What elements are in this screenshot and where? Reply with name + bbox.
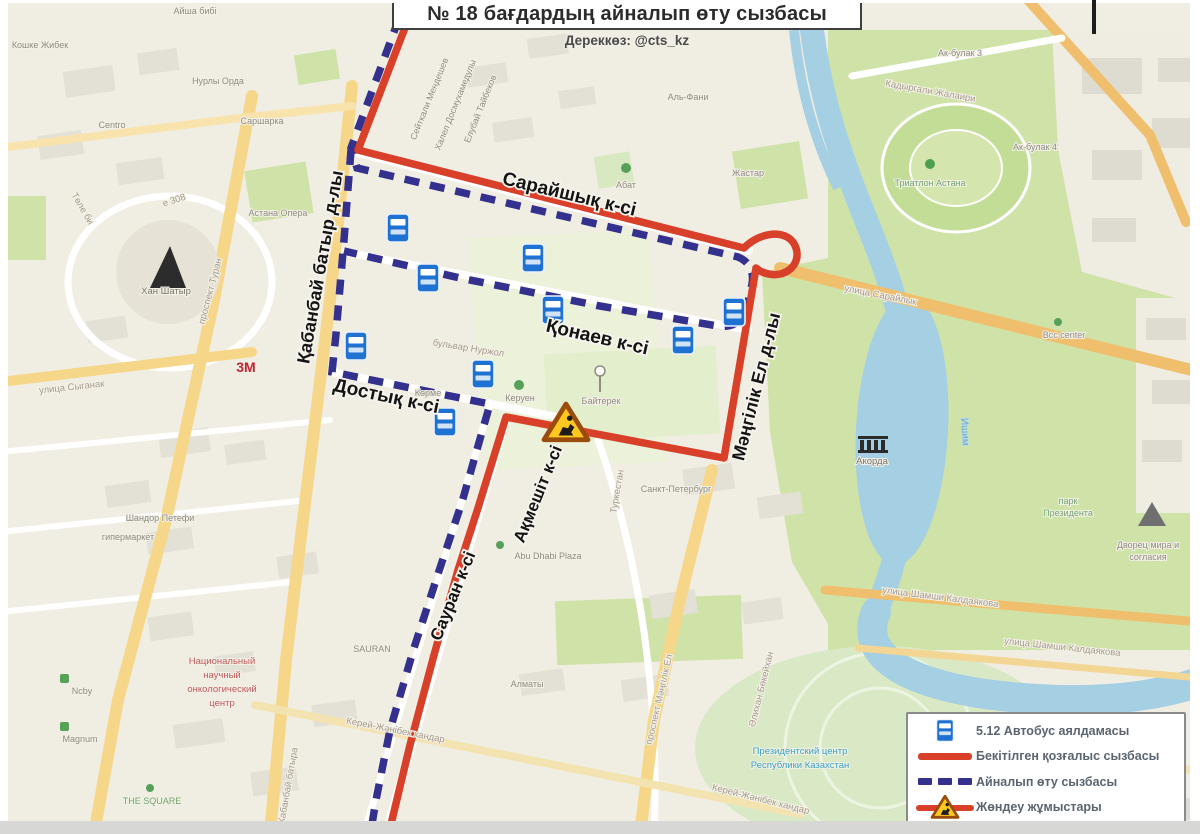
- map-label: Ncby: [72, 686, 93, 696]
- map-label: Шандор Петефи: [126, 513, 195, 523]
- map-label: 3М: [236, 359, 255, 375]
- map-label: Дворец мира и: [1117, 540, 1179, 550]
- map-label: Президента: [1043, 508, 1093, 518]
- map-label: Нурлы Орда: [192, 76, 244, 86]
- map-label: THE SQUARE: [123, 796, 182, 806]
- map-label: парк: [1059, 496, 1078, 506]
- legend-label: Бекітілген қозғалыс сызбасы: [976, 749, 1159, 763]
- magnum-icon: [60, 722, 69, 731]
- map-label: Санкт-Петербург: [641, 484, 712, 494]
- map-label: научный: [203, 670, 241, 681]
- legend-label: Айналып өту сызбасы: [976, 775, 1117, 789]
- legend-label: Жөндеу жұмыстары: [976, 800, 1102, 814]
- stadium: [882, 104, 1030, 232]
- approved-route-swatch: [918, 753, 972, 760]
- frame-top: [0, 0, 1200, 3]
- bus-stop-icon: [345, 332, 367, 360]
- triatlon-icon: [925, 159, 935, 169]
- map-label: гипермаркет: [102, 532, 154, 542]
- the-square-icon: [146, 784, 154, 792]
- map-label: Байтерек: [582, 396, 621, 406]
- source-credit: Дереккөз: @cts_kz: [392, 33, 862, 48]
- map-label: Абат: [616, 180, 636, 190]
- title-box: № 18 бағдардың айналып өту сызбасы: [392, 0, 862, 30]
- map-label: Алматы: [511, 679, 544, 689]
- scrollbar-artifact: [1092, 0, 1096, 34]
- map-canvas: Айша бибі Кошке Жибек Нурлы Орда Саршарк…: [0, 0, 1200, 834]
- detour-route-swatch: [918, 778, 972, 785]
- bus-stop-icon: [723, 298, 745, 326]
- ncby-icon: [60, 674, 69, 683]
- legend-item-bus-stop: 5.12 Автобус аялдамасы: [914, 718, 1178, 743]
- map-label: Аль-Фани: [668, 92, 709, 102]
- detour-map-screenshot: Айша бибі Кошке Жибек Нурлы Орда Саршарк…: [0, 0, 1200, 834]
- map-label: Abu Dhabi Plaza: [514, 551, 581, 561]
- map-label: согласия: [1129, 552, 1166, 562]
- bus-stop-icon: [914, 718, 976, 743]
- legend-label: 5.12 Автобус аялдамасы: [976, 724, 1129, 738]
- map-label: Ишим: [958, 418, 970, 446]
- map-label: Республики Казахстан: [751, 760, 849, 771]
- map-label: Национальный: [189, 656, 256, 667]
- bus-stop-icon: [522, 244, 544, 272]
- map-label: Ак-булак 3: [938, 48, 982, 58]
- frame-bottom: [0, 821, 1200, 834]
- map-label: Саршарка: [241, 116, 284, 126]
- roadworks-icon: [916, 795, 974, 820]
- legend: 5.12 Автобус аялдамасы Бекітілген қозғал…: [906, 712, 1186, 826]
- bus-stop-icon: [472, 360, 494, 388]
- map-label: SAURAN: [353, 644, 391, 654]
- map-label: центр: [209, 698, 235, 709]
- abu-dhabi-icon: [496, 541, 504, 549]
- legend-item-roadworks: Жөндеу жұмыстары: [914, 795, 1178, 820]
- bus-stop-icon: [387, 214, 409, 242]
- legend-item-approved-route: Бекітілген қозғалыс сызбасы: [914, 744, 1178, 769]
- map-label: Триатлон Астана: [894, 178, 965, 188]
- bcc-icon: [1054, 318, 1062, 326]
- map-label: онкологический: [187, 684, 256, 695]
- map-label: Хан Шатыр: [141, 286, 191, 297]
- bus-stop-icon: [672, 326, 694, 354]
- page-title: № 18 бағдардың айналып өту сызбасы: [427, 3, 827, 26]
- map-label: Centro: [98, 120, 125, 130]
- frame-left: [0, 0, 8, 834]
- map-label: Президентский центр: [753, 746, 848, 757]
- map-label: Керуен: [505, 393, 535, 403]
- bus-stop-icon: [417, 264, 439, 292]
- map-label: Bcc center: [1043, 330, 1086, 340]
- map-label: Айша бибі: [173, 6, 216, 16]
- abat-icon: [621, 163, 631, 173]
- map-label: Magnum: [62, 734, 97, 744]
- map-label: Жастар: [732, 168, 764, 178]
- map-label: Ак-булак 4: [1013, 142, 1057, 152]
- frame-right: [1190, 0, 1200, 834]
- map-label: Акорда: [856, 456, 888, 467]
- legend-item-detour-route: Айналып өту сызбасы: [914, 769, 1178, 794]
- map-label: Кошке Жибек: [12, 40, 68, 50]
- keruen-icon: [514, 380, 524, 390]
- map-label: Астана Опера: [249, 208, 308, 218]
